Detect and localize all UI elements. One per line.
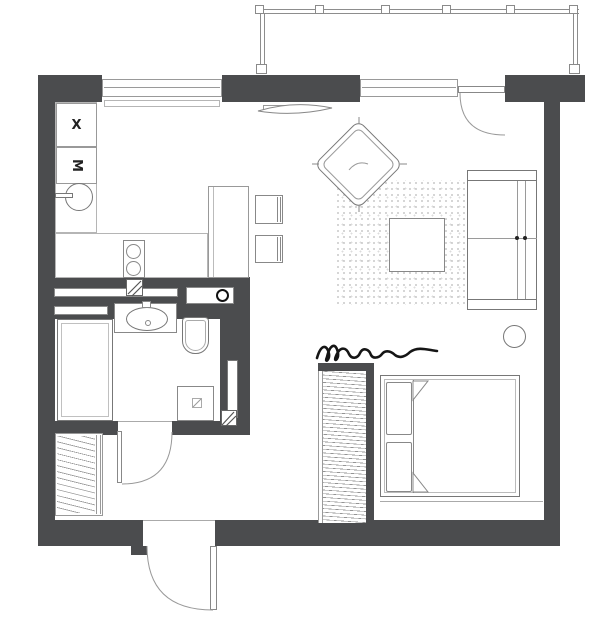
bathroom-shelf-2 xyxy=(54,306,108,315)
balcony-rail-top xyxy=(259,9,579,14)
balcony-post xyxy=(506,5,515,14)
washing-machine-drum xyxy=(216,289,229,302)
bedroom-wardrobe-clothes xyxy=(323,371,366,523)
appliance-m-label: M xyxy=(56,147,97,184)
wall-bottom-right xyxy=(215,520,560,546)
wall-door-stub xyxy=(131,546,147,555)
kitchen-island-edge xyxy=(213,187,214,277)
kitchen-window-sill xyxy=(104,100,220,107)
hall-wardrobe-clothes xyxy=(57,436,95,513)
pillow xyxy=(386,442,412,492)
balcony-post xyxy=(315,5,324,14)
balcony-post xyxy=(569,5,578,14)
appliance-x-label: X xyxy=(56,103,97,147)
balcony-post xyxy=(381,5,390,14)
wall-top-middle xyxy=(222,75,360,102)
sofa-armrest xyxy=(467,170,537,181)
wall-top-left xyxy=(38,75,102,102)
bathroom-shelf xyxy=(54,288,178,297)
wall-top-right xyxy=(505,75,585,102)
bar-stool-back xyxy=(277,237,281,261)
bar-stool-back xyxy=(277,197,281,222)
bathroom-door-opening xyxy=(118,421,172,435)
wall-right xyxy=(544,102,560,546)
wall-bottom-left xyxy=(38,520,143,546)
entrance-threshold xyxy=(143,520,215,521)
curtain-divider xyxy=(317,346,437,361)
kitchen-vent-hatch xyxy=(126,279,143,296)
sofa-armrest xyxy=(467,299,537,310)
living-window xyxy=(360,79,458,97)
kitchen-island xyxy=(208,186,249,278)
entrance-door-arc xyxy=(147,546,213,610)
sofa xyxy=(467,170,537,310)
washbasin xyxy=(126,307,168,331)
balcony-post xyxy=(442,5,451,14)
washbasin-faucet xyxy=(142,301,151,308)
hall-wardrobe-rail xyxy=(96,435,101,514)
balcony-post xyxy=(255,5,264,14)
bathroom-door-frame xyxy=(118,421,172,422)
stove-burner xyxy=(126,261,141,276)
balcony-door-arc xyxy=(460,93,505,135)
entrance-opening xyxy=(143,520,215,546)
sofa-button xyxy=(523,236,527,240)
kitchen-window-glazing xyxy=(104,87,220,88)
bathtub-inner xyxy=(61,323,109,417)
round-side-table xyxy=(503,325,526,348)
wall-bath-bottom-right xyxy=(172,421,220,435)
bed-foot-line xyxy=(380,501,543,502)
living-window-glazing xyxy=(362,87,456,88)
sofa-backrest-line xyxy=(525,181,526,299)
bathroom-door-leaf xyxy=(117,431,122,483)
tv-console xyxy=(263,105,299,112)
wall-bedroom-vertical xyxy=(366,363,374,523)
bathroom-door-arc xyxy=(122,432,172,484)
balcony-rail-left xyxy=(260,14,265,66)
floor-plan: X M xyxy=(0,0,600,617)
sofa-button xyxy=(515,236,519,240)
balcony-door-leaf xyxy=(458,86,505,93)
balcony-post-cap xyxy=(569,64,580,74)
pillow xyxy=(386,382,412,435)
kitchen-window xyxy=(102,79,222,97)
blanket-edge xyxy=(413,380,414,493)
entrance-door-leaf xyxy=(210,546,217,610)
washbasin-drain xyxy=(145,320,151,326)
toilet-seat xyxy=(185,320,206,351)
duct-hatch xyxy=(221,410,237,426)
stove-burner xyxy=(126,244,141,259)
balcony-post-cap xyxy=(256,64,267,74)
sofa-backrest-line xyxy=(517,181,518,299)
kitchen-faucet xyxy=(55,193,73,198)
coffee-table xyxy=(389,218,445,272)
balcony-rail-right xyxy=(573,14,578,66)
shower-drain xyxy=(192,398,202,408)
